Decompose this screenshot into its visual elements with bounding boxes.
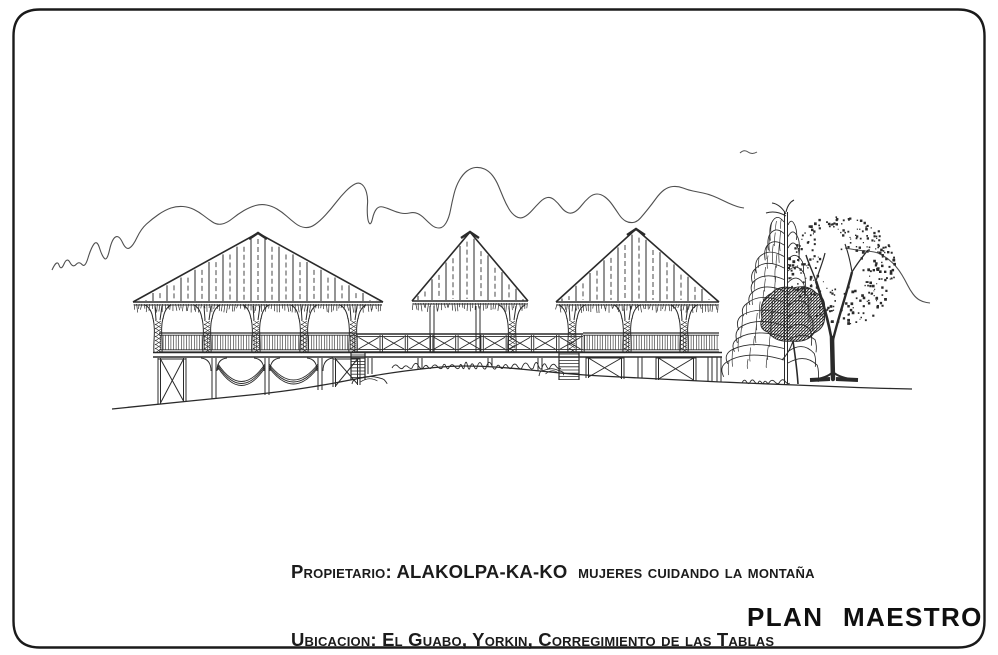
dark-shrub [761,287,825,384]
hammocks [218,364,318,386]
sheet-title: PLAN MAESTRO [747,602,983,633]
pavilion-left [133,233,383,353]
location-line: Ubicacion: El Guabo, Yorkin, Corregimien… [291,629,815,652]
drawing-sheet: Propietario: ALAKOLPA-KA-KO mujeres cuid… [0,0,998,655]
scrub-under-willow [742,380,790,384]
ground-line [112,366,912,409]
stairs-right [559,352,579,380]
bird-mark [740,151,757,154]
owner-line: Propietario: ALAKOLPA-KA-KO mujeres cuid… [291,561,815,584]
title-block: Propietario: ALAKOLPA-KA-KO mujeres cuid… [291,516,815,655]
stilts-left [158,358,360,404]
pavilion-middle [412,232,528,353]
